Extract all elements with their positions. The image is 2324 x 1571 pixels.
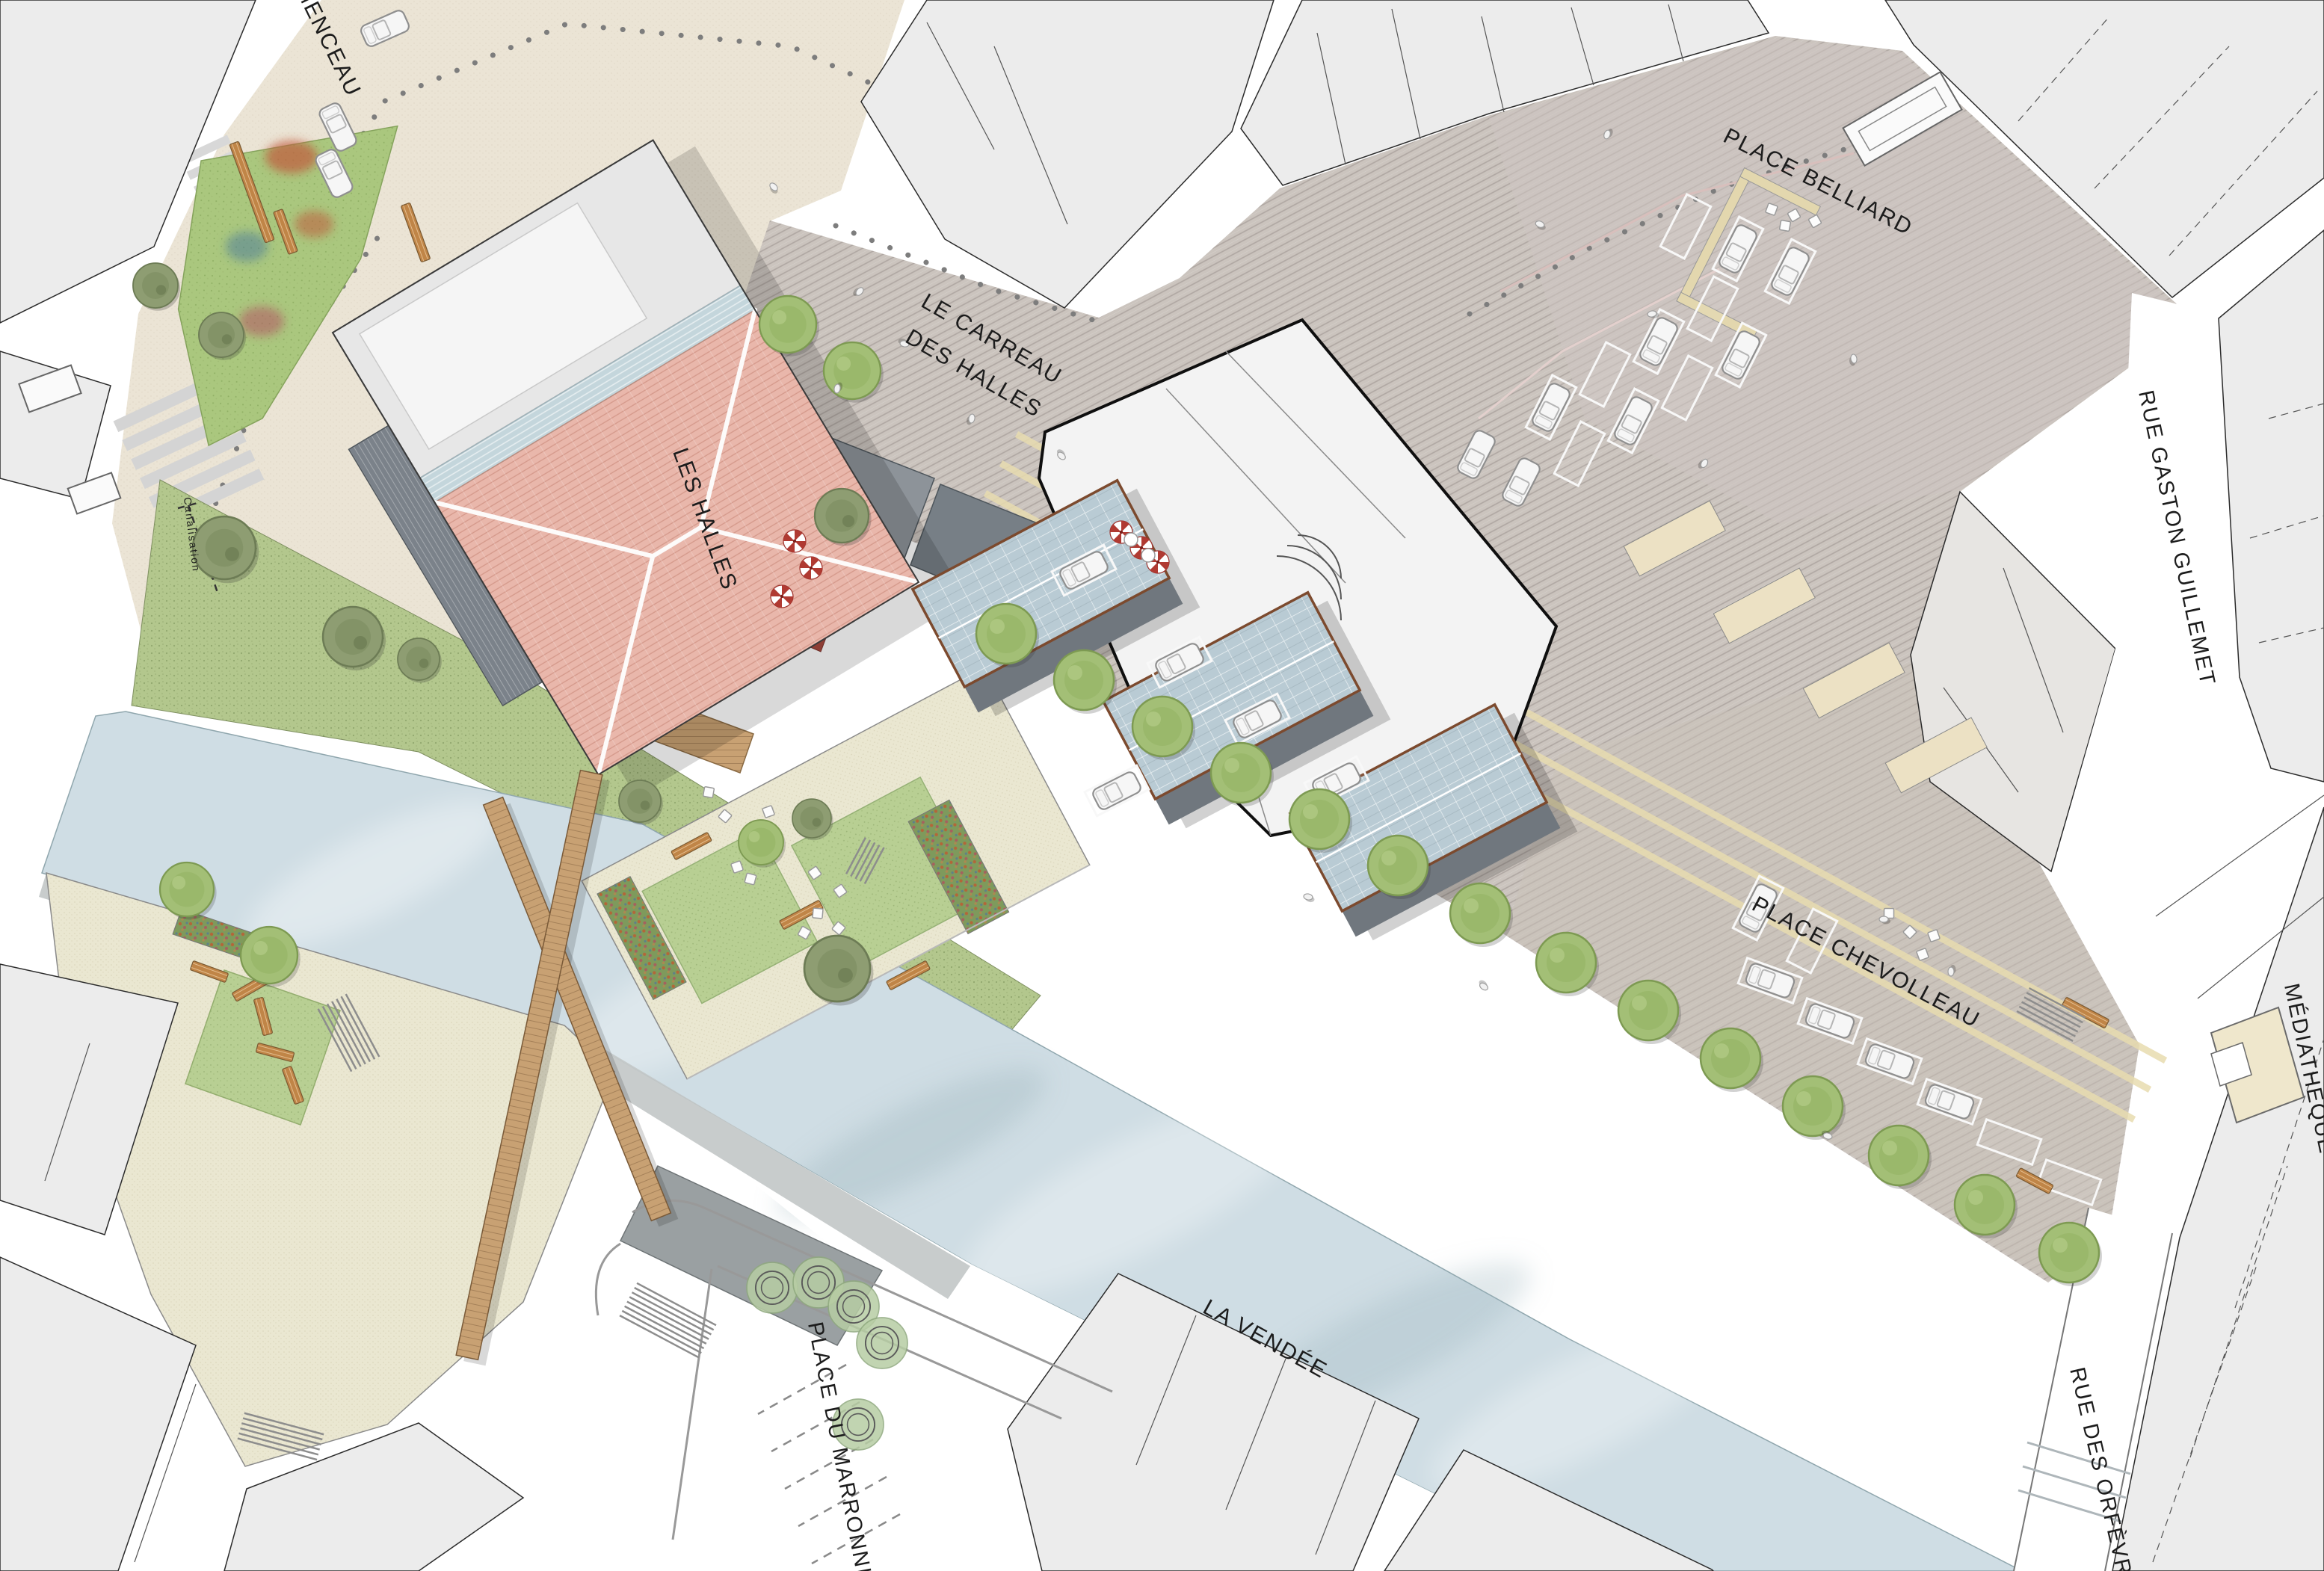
table-symbol [1141, 549, 1155, 562]
chair-symbol [1779, 220, 1790, 231]
table-symbol [1124, 533, 1138, 546]
tree-outline-symbol [857, 1318, 907, 1368]
chair-symbol [813, 908, 823, 919]
site-plan-drawing: MENCEAULE CARREAUDES HALLESLES HALLESPLA… [0, 0, 2324, 1571]
chair-symbol [703, 786, 714, 797]
tree-outline-symbol [747, 1262, 798, 1313]
parasol-icon [771, 585, 793, 608]
masterplan-canvas: MENCEAULE CARREAUDES HALLESLES HALLESPLA… [0, 0, 2324, 1571]
chair-symbol [745, 873, 756, 885]
parasol-icon [783, 530, 806, 552]
parasol-icon [800, 557, 822, 579]
